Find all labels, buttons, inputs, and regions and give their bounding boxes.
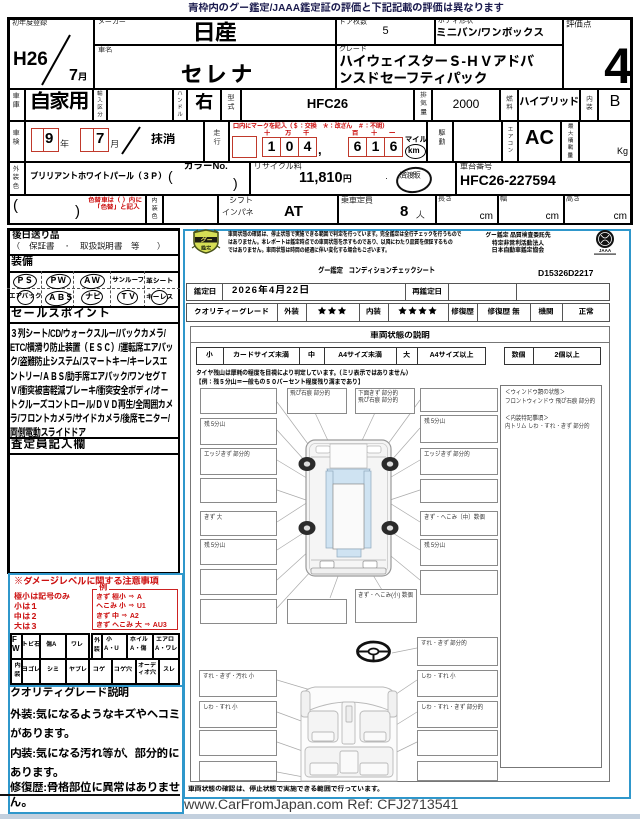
svg-text:鑑定: 鑑定 <box>201 245 211 253</box>
svg-text:JAAA: JAAA <box>599 248 612 253</box>
svg-text:グー: グー <box>200 236 213 245</box>
